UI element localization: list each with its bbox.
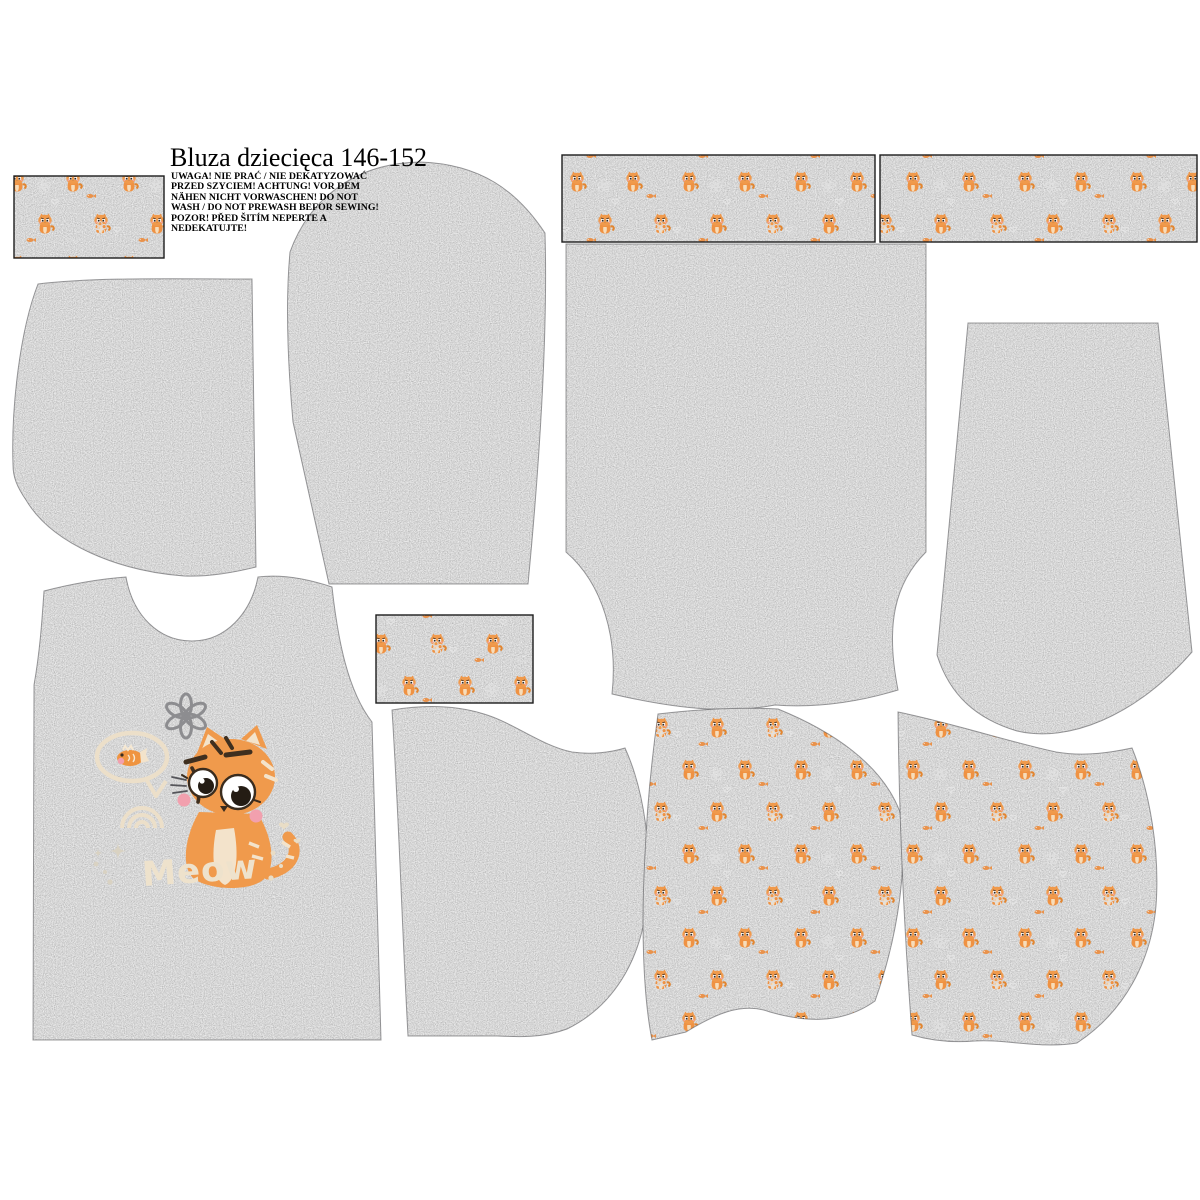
warning-line: NEDEKATUJTE! [171, 224, 379, 234]
pattern-sheet: Meow Bluza dziecięca 146-152 UWAGA! NIE … [0, 0, 1200, 1200]
cat-blush-left [178, 794, 191, 807]
fabric-sample-swatch [14, 176, 164, 258]
small-print-swatch [376, 615, 533, 703]
care-warning: UWAGA! NIE PRAĆ / NIE DEKATYZOWAĆ PRZED … [171, 172, 379, 234]
side-panel [937, 323, 1192, 734]
hood-piece-print-1 [643, 708, 903, 1040]
print-strip-2 [880, 155, 1197, 242]
back-panel [566, 244, 926, 710]
hood-piece-print-2 [898, 712, 1157, 1045]
meow-text: Meow [141, 847, 259, 895]
page-title: Bluza dziecięca 146-152 [170, 143, 427, 173]
cat-blush-right [250, 810, 263, 823]
sleeve-piece-left [13, 279, 256, 576]
print-strip-1 [562, 155, 875, 242]
hood-piece-gray [392, 707, 649, 1037]
front-panel: Meow [33, 576, 381, 1040]
